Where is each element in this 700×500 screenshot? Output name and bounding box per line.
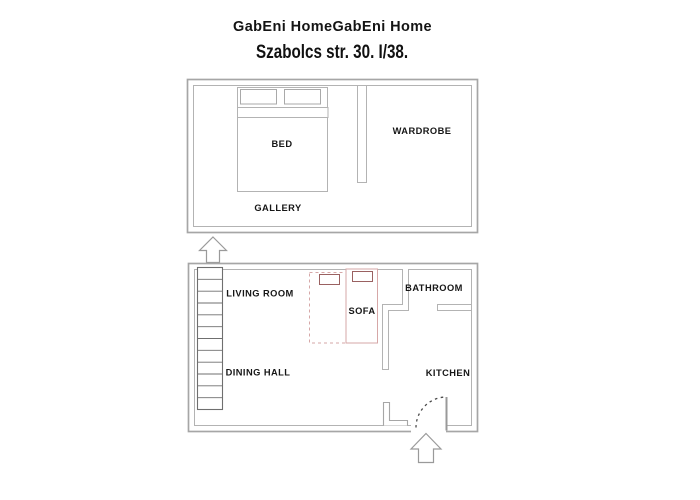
room-label-dining-hall: DINING HALL bbox=[226, 368, 291, 378]
entry-nook-wall bbox=[384, 403, 408, 426]
floorplan-canvas: BED WARDROBE GALLERY bbox=[0, 0, 700, 500]
door-swing-arc bbox=[416, 397, 447, 428]
upper-floorplan: BED WARDROBE GALLERY bbox=[188, 80, 478, 233]
room-label-living-room: LIVING ROOM bbox=[226, 289, 293, 299]
room-label-bed: BED bbox=[272, 139, 293, 149]
room-label-bathroom: BATHROOM bbox=[405, 283, 463, 293]
room-label-kitchen: KITCHEN bbox=[426, 368, 470, 378]
stairs-up-arrow-icon bbox=[200, 237, 227, 263]
wardrobe-partition-wall bbox=[358, 86, 367, 183]
bathroom-bottom-wall bbox=[438, 305, 472, 311]
lower-floorplan: LIVING ROOM SOFA BATHROOM DINING HALL KI… bbox=[189, 264, 478, 433]
room-label-sofa: SOFA bbox=[348, 306, 375, 316]
bed-blanket-band bbox=[238, 108, 329, 118]
floorplan-page: GabEni HomeGabEni Home Szabolcs str. 30.… bbox=[0, 0, 700, 500]
room-label-gallery: GALLERY bbox=[254, 203, 302, 213]
upper-inner-wall bbox=[194, 86, 472, 227]
bed-pillow-right bbox=[285, 90, 321, 105]
entrance-door bbox=[411, 397, 447, 433]
sofa-pillow-left bbox=[320, 275, 340, 285]
room-label-wardrobe: WARDROBE bbox=[393, 126, 452, 136]
entrance-up-arrow-icon bbox=[411, 434, 441, 463]
upper-outer-wall bbox=[188, 80, 478, 233]
bed-pillow-left bbox=[241, 90, 277, 105]
staircase bbox=[198, 268, 223, 410]
sofa-pillow-right bbox=[353, 272, 373, 282]
